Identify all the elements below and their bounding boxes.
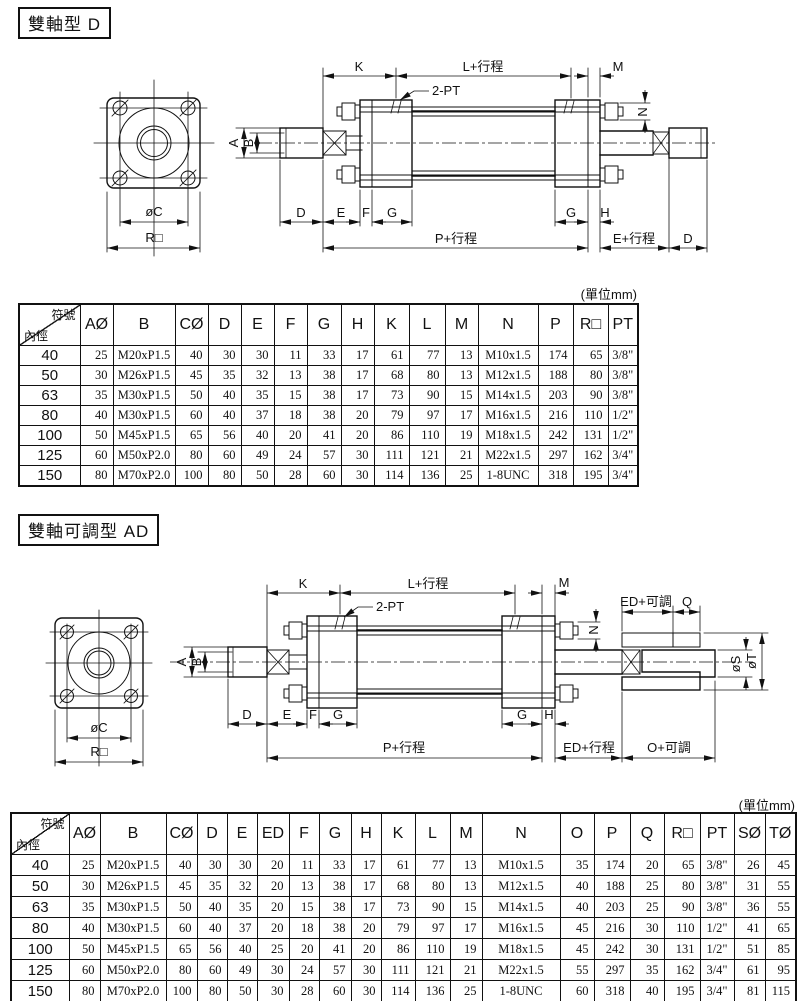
corner-label-bore: 內徑 [24, 327, 48, 344]
table-row: 5030M26xP1.545353220133817688013M12x1.54… [11, 876, 796, 897]
value-cell: M12x1.5 [482, 876, 560, 897]
value-cell: M45xP1.5 [100, 939, 166, 960]
section-ad-title: 雙軸可調型 AD [18, 514, 159, 546]
value-cell: 30 [630, 939, 664, 960]
value-cell: 19 [450, 939, 482, 960]
value-cell: 100 [175, 466, 208, 487]
value-cell: 40 [175, 346, 208, 366]
value-cell: 60 [175, 406, 208, 426]
value-cell: M20xP1.5 [100, 855, 166, 876]
value-cell: 30 [197, 855, 227, 876]
type-ad-drawing: øC R□ A B [0, 555, 800, 770]
value-cell: 17 [450, 918, 482, 939]
header-row: 符號 內徑 AØBCØDEEDFGHKLMNOPQR□PTSØTØ [11, 813, 796, 855]
dim-label-f-d: F [362, 205, 370, 220]
column-header: R□ [664, 813, 700, 855]
value-cell: 242 [538, 426, 573, 446]
dim-label-m-ad: M [559, 575, 570, 590]
value-cell: 13 [445, 346, 478, 366]
value-cell: 121 [415, 960, 450, 981]
column-header: TØ [765, 813, 796, 855]
value-cell: 55 [765, 876, 796, 897]
table-row: 15080M70xP2.0100805030286030114136251-8U… [11, 981, 796, 1001]
side-view-ad: A B [170, 575, 768, 762]
value-cell: 61 [381, 855, 415, 876]
column-header: P [594, 813, 630, 855]
value-cell: M22x1.5 [478, 446, 538, 466]
value-cell: 97 [415, 918, 450, 939]
value-cell: 19 [445, 426, 478, 446]
value-cell: 35 [197, 876, 227, 897]
value-cell: 25 [69, 855, 100, 876]
column-header: F [274, 304, 307, 346]
column-header: N [478, 304, 538, 346]
value-cell: M18x1.5 [482, 939, 560, 960]
value-cell: M26xP1.5 [113, 366, 175, 386]
bore-cell: 63 [11, 897, 69, 918]
dim-label-g-d: G [387, 205, 397, 220]
port-label-ad: 2-PT [376, 599, 404, 614]
value-cell: 80 [409, 366, 445, 386]
value-cell: 30 [630, 918, 664, 939]
section-d-title: 雙軸型 D [18, 7, 111, 39]
value-cell: 18 [274, 406, 307, 426]
value-cell: 131 [573, 426, 608, 446]
value-cell: 80 [69, 981, 100, 1001]
dim-label-f-ad: F [309, 707, 317, 722]
dim-label-a-d: A [226, 138, 241, 147]
value-cell: 35 [560, 855, 594, 876]
value-cell: 79 [381, 918, 415, 939]
value-cell: M12x1.5 [478, 366, 538, 386]
value-cell: M16x1.5 [478, 406, 538, 426]
value-cell: 61 [734, 960, 765, 981]
value-cell: M50xP2.0 [113, 446, 175, 466]
value-cell: 35 [80, 386, 113, 406]
value-cell: 73 [374, 386, 409, 406]
value-cell: 30 [241, 346, 274, 366]
value-cell: 65 [765, 918, 796, 939]
table-row: 12560M50xP2.08060493024573011112121M22x1… [11, 960, 796, 981]
type-d-drawing: øC R□ A B [0, 40, 800, 260]
dim-label-phic-ad: øC [90, 720, 107, 735]
value-cell: 31 [734, 876, 765, 897]
value-cell: 33 [307, 346, 341, 366]
column-header: B [113, 304, 175, 346]
value-cell: M30xP1.5 [113, 386, 175, 406]
value-cell: 50 [227, 981, 257, 1001]
bore-cell: 100 [11, 939, 69, 960]
dim-label-g2-d: G [566, 205, 576, 220]
value-cell: 45 [560, 939, 594, 960]
value-cell: 35 [227, 897, 257, 918]
value-cell: 111 [374, 446, 409, 466]
table-row: 6335M30xP1.5504035153817739015M14x1.5203… [19, 386, 638, 406]
value-cell: 13 [450, 855, 482, 876]
value-cell: 13 [445, 366, 478, 386]
dim-label-a-ad: A [174, 657, 189, 666]
value-cell: 40 [69, 918, 100, 939]
value-cell: 80 [573, 366, 608, 386]
value-cell: 40 [560, 897, 594, 918]
front-view-d: øC R□ [94, 80, 214, 256]
corner-cell: 符號 內徑 [11, 813, 69, 855]
dim-label-q-ad: Q [682, 594, 692, 609]
value-cell: 17 [445, 406, 478, 426]
value-cell: 174 [594, 855, 630, 876]
value-cell: 81 [734, 981, 765, 1001]
value-cell: 18 [289, 918, 319, 939]
value-cell: 318 [594, 981, 630, 1001]
column-header: CØ [166, 813, 197, 855]
value-cell: 25 [630, 876, 664, 897]
corner-label-symbol: 符號 [40, 815, 64, 832]
type-ad-table: 符號 內徑 AØBCØDEEDFGHKLMNOPQR□PTSØTØ 4025M2… [10, 812, 797, 1001]
value-cell: 20 [257, 918, 289, 939]
bore-cell: 125 [19, 446, 80, 466]
value-cell: 38 [319, 918, 351, 939]
value-cell: 114 [374, 466, 409, 487]
value-cell: 174 [538, 346, 573, 366]
value-cell: 41 [734, 918, 765, 939]
dim-label-pstroke-ad: P+行程 [383, 740, 425, 755]
bore-cell: 63 [19, 386, 80, 406]
value-cell: 50 [241, 466, 274, 487]
value-cell: 131 [664, 939, 700, 960]
bore-cell: 40 [11, 855, 69, 876]
value-cell: 40 [197, 918, 227, 939]
value-cell: 51 [734, 939, 765, 960]
table-row: 5030M26xP1.5453532133817688013M12x1.5188… [19, 366, 638, 386]
value-cell: 86 [381, 939, 415, 960]
dim-label-h-d: H [600, 205, 609, 220]
value-cell: 15 [289, 897, 319, 918]
value-cell: 38 [307, 406, 341, 426]
value-cell: 17 [351, 897, 381, 918]
value-cell: 60 [560, 981, 594, 1001]
value-cell: 3/4" [608, 446, 638, 466]
value-cell: 11 [289, 855, 319, 876]
dim-label-pstroke-d: P+行程 [435, 231, 477, 246]
table-row: 4025M20xP1.540303020113317617713M10x1.53… [11, 855, 796, 876]
dim-label-lstroke-d: L+行程 [463, 59, 504, 74]
value-cell: 80 [80, 466, 113, 487]
column-header: CØ [175, 304, 208, 346]
value-cell: 203 [594, 897, 630, 918]
dim-label-edadj-ad: ED+可調 [620, 594, 672, 609]
bore-cell: 125 [11, 960, 69, 981]
value-cell: M30xP1.5 [113, 406, 175, 426]
value-cell: 68 [374, 366, 409, 386]
table-row: 6335M30xP1.550403520153817739015M14x1.54… [11, 897, 796, 918]
value-cell: 49 [227, 960, 257, 981]
value-cell: 35 [69, 897, 100, 918]
value-cell: 65 [664, 855, 700, 876]
column-header: N [482, 813, 560, 855]
dim-label-e-ad: E [283, 707, 292, 722]
value-cell: 25 [257, 939, 289, 960]
catalog-page: 雙軸型 D [0, 0, 800, 1001]
value-cell: 40 [80, 406, 113, 426]
value-cell: 30 [208, 346, 241, 366]
value-cell: 49 [241, 446, 274, 466]
table-row: 8040M30xP1.560403720183820799717M16x1.54… [11, 918, 796, 939]
value-cell: 80 [664, 876, 700, 897]
value-cell: 80 [197, 981, 227, 1001]
table-row: 15080M70xP2.01008050286030114136251-8UNC… [19, 466, 638, 487]
front-view-ad: øC R□ [46, 610, 152, 766]
column-header: PT [608, 304, 638, 346]
value-cell: 77 [415, 855, 450, 876]
dim-label-g2-ad: G [517, 707, 527, 722]
value-cell: 297 [538, 446, 573, 466]
value-cell: 30 [257, 960, 289, 981]
value-cell: 242 [594, 939, 630, 960]
side-view-d: A B [226, 59, 718, 252]
dim-label-b-ad: B [189, 658, 204, 667]
value-cell: 90 [415, 897, 450, 918]
column-header: F [289, 813, 319, 855]
value-cell: 40 [560, 876, 594, 897]
column-header: H [351, 813, 381, 855]
value-cell: 111 [381, 960, 415, 981]
column-header: PT [700, 813, 734, 855]
value-cell: 50 [80, 426, 113, 446]
value-cell: 195 [664, 981, 700, 1001]
value-cell: 80 [175, 446, 208, 466]
value-cell: 30 [341, 446, 374, 466]
value-cell: 15 [445, 386, 478, 406]
value-cell: 318 [538, 466, 573, 487]
value-cell: 136 [415, 981, 450, 1001]
value-cell: 60 [166, 918, 197, 939]
value-cell: 1-8UNC [478, 466, 538, 487]
value-cell: 33 [319, 855, 351, 876]
value-cell: 136 [409, 466, 445, 487]
value-cell: 25 [80, 346, 113, 366]
column-header: H [341, 304, 374, 346]
value-cell: 3/8" [608, 346, 638, 366]
value-cell: 45 [765, 855, 796, 876]
value-cell: M14x1.5 [482, 897, 560, 918]
bore-cell: 50 [19, 366, 80, 386]
value-cell: 20 [351, 918, 381, 939]
column-header: O [560, 813, 594, 855]
value-cell: 65 [166, 939, 197, 960]
value-cell: 60 [307, 466, 341, 487]
value-cell: 55 [560, 960, 594, 981]
dim-label-phit-ad: øT [744, 653, 759, 669]
value-cell: 11 [274, 346, 307, 366]
value-cell: 30 [351, 981, 381, 1001]
value-cell: 41 [307, 426, 341, 446]
value-cell: 60 [208, 446, 241, 466]
value-cell: 17 [341, 386, 374, 406]
value-cell: 1/2" [700, 918, 734, 939]
column-header: L [409, 304, 445, 346]
dim-label-edstroke-ad: ED+行程 [563, 740, 615, 755]
value-cell: 32 [241, 366, 274, 386]
column-header: Q [630, 813, 664, 855]
value-cell: 45 [166, 876, 197, 897]
value-cell: 56 [197, 939, 227, 960]
value-cell: 20 [341, 406, 374, 426]
value-cell: 17 [351, 876, 381, 897]
value-cell: 297 [594, 960, 630, 981]
value-cell: 20 [341, 426, 374, 446]
value-cell: 40 [208, 386, 241, 406]
dim-label-d-d: D [296, 205, 305, 220]
value-cell: 38 [319, 876, 351, 897]
dim-label-h-ad: H [544, 707, 553, 722]
value-cell: 25 [445, 466, 478, 487]
value-cell: 40 [197, 897, 227, 918]
value-cell: 60 [69, 960, 100, 981]
value-cell: M45xP1.5 [113, 426, 175, 446]
dim-label-n-d: N [635, 107, 650, 116]
value-cell: M50xP2.0 [100, 960, 166, 981]
table-row: 10050M45xP1.5655640252041208611019M18x1.… [11, 939, 796, 960]
dim-label-k-d: K [355, 59, 364, 74]
column-header: SØ [734, 813, 765, 855]
value-cell: 77 [409, 346, 445, 366]
column-header: M [450, 813, 482, 855]
value-cell: 20 [257, 876, 289, 897]
table-row: 10050M45xP1.56556402041208611019M18x1.52… [19, 426, 638, 446]
value-cell: M14x1.5 [478, 386, 538, 406]
value-cell: 162 [664, 960, 700, 981]
value-cell: 3/8" [700, 897, 734, 918]
bore-cell: 50 [11, 876, 69, 897]
dim-label-m-d: M [613, 59, 624, 74]
value-cell: 56 [208, 426, 241, 446]
value-cell: M10x1.5 [478, 346, 538, 366]
value-cell: 15 [450, 897, 482, 918]
value-cell: M30xP1.5 [100, 897, 166, 918]
bore-cell: 80 [11, 918, 69, 939]
value-cell: 50 [166, 897, 197, 918]
value-cell: 20 [274, 426, 307, 446]
value-cell: 60 [197, 960, 227, 981]
bore-cell: 80 [19, 406, 80, 426]
value-cell: 30 [257, 981, 289, 1001]
value-cell: 1/2" [608, 406, 638, 426]
value-cell: 38 [307, 386, 341, 406]
bore-cell: 40 [19, 346, 80, 366]
value-cell: 73 [381, 897, 415, 918]
value-cell: 3/4" [700, 960, 734, 981]
corner-label-symbol: 符號 [51, 306, 75, 323]
value-cell: 3/8" [608, 366, 638, 386]
value-cell: 40 [166, 855, 197, 876]
value-cell: M30xP1.5 [100, 918, 166, 939]
value-cell: 90 [573, 386, 608, 406]
column-header: M [445, 304, 478, 346]
value-cell: 3/4" [608, 466, 638, 487]
value-cell: 40 [241, 426, 274, 446]
value-cell: 90 [664, 897, 700, 918]
value-cell: 30 [80, 366, 113, 386]
value-cell: 85 [765, 939, 796, 960]
port-label-d: 2-PT [432, 83, 460, 98]
value-cell: 1/2" [700, 939, 734, 960]
value-cell: 114 [381, 981, 415, 1001]
column-header: K [374, 304, 409, 346]
value-cell: 32 [227, 876, 257, 897]
dim-label-k-ad: K [299, 576, 308, 591]
value-cell: 40 [227, 939, 257, 960]
value-cell: 20 [257, 855, 289, 876]
value-cell: 65 [573, 346, 608, 366]
table-row: 8040M30xP1.5604037183820799717M16x1.5216… [19, 406, 638, 426]
value-cell: 188 [594, 876, 630, 897]
value-cell: 21 [445, 446, 478, 466]
value-cell: 110 [409, 426, 445, 446]
value-cell: 17 [351, 855, 381, 876]
value-cell: 3/8" [700, 876, 734, 897]
value-cell: 57 [307, 446, 341, 466]
column-header: E [241, 304, 274, 346]
value-cell: 1/2" [608, 426, 638, 446]
value-cell: 162 [573, 446, 608, 466]
value-cell: 24 [289, 960, 319, 981]
value-cell: 90 [409, 386, 445, 406]
value-cell: 195 [573, 466, 608, 487]
column-header: AØ [80, 304, 113, 346]
value-cell: 40 [630, 981, 664, 1001]
value-cell: 50 [175, 386, 208, 406]
value-cell: 110 [415, 939, 450, 960]
value-cell: 3/4" [700, 981, 734, 1001]
value-cell: 37 [227, 918, 257, 939]
value-cell: 28 [274, 466, 307, 487]
value-cell: 13 [289, 876, 319, 897]
dim-label-d2-d: D [683, 231, 692, 246]
value-cell: 60 [319, 981, 351, 1001]
dim-label-oadj-ad: O+可調 [647, 740, 691, 755]
unit-note-d: (單位mm) [540, 284, 637, 303]
column-header: P [538, 304, 573, 346]
dim-label-lstroke-ad: L+行程 [408, 576, 449, 591]
dim-label-phic-d: øC [145, 204, 162, 219]
dim-label-g-ad: G [333, 707, 343, 722]
dim-label-estroke-d: E+行程 [613, 231, 655, 246]
value-cell: 100 [166, 981, 197, 1001]
value-cell: 17 [341, 366, 374, 386]
value-cell: 40 [208, 406, 241, 426]
value-cell: M70xP2.0 [113, 466, 175, 487]
value-cell: 13 [450, 876, 482, 897]
column-header: D [197, 813, 227, 855]
value-cell: 79 [374, 406, 409, 426]
type-d-table: 符號 內徑 AØBCØDEFGHKLMNPR□PT 4025M20xP1.540… [18, 303, 639, 487]
bore-cell: 100 [19, 426, 80, 446]
value-cell: 3/8" [700, 855, 734, 876]
value-cell: M26xP1.5 [100, 876, 166, 897]
column-header: L [415, 813, 450, 855]
dim-label-d-ad: D [242, 707, 251, 722]
value-cell: 61 [374, 346, 409, 366]
value-cell: 41 [319, 939, 351, 960]
value-cell: 24 [274, 446, 307, 466]
column-header: E [227, 813, 257, 855]
value-cell: 21 [450, 960, 482, 981]
column-header: K [381, 813, 415, 855]
value-cell: 95 [765, 960, 796, 981]
value-cell: 80 [415, 876, 450, 897]
value-cell: 30 [69, 876, 100, 897]
value-cell: 35 [630, 960, 664, 981]
